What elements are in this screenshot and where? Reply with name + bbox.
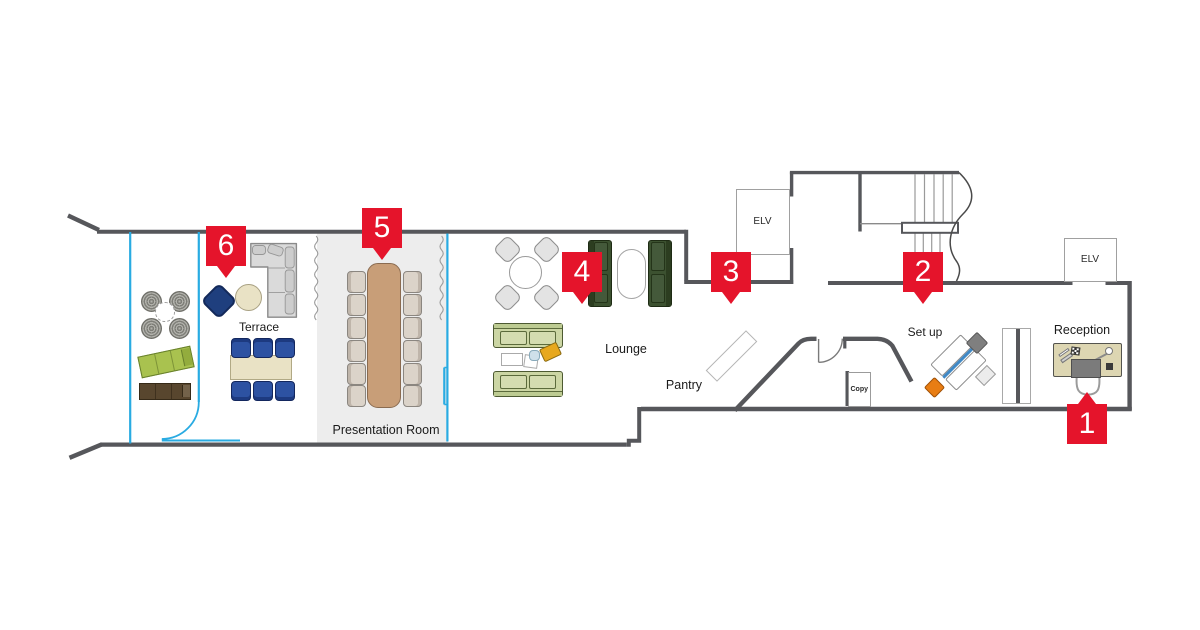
stair-handrail	[902, 223, 958, 233]
presentation-chair	[403, 271, 422, 293]
presentation-chair	[403, 294, 422, 316]
dining-chair	[253, 338, 273, 358]
elv-label: ELV	[753, 216, 771, 227]
ottoman-navy	[201, 283, 238, 320]
marker-3[interactable]: 3	[711, 252, 751, 292]
marker-5[interactable]: 5	[362, 208, 402, 248]
presentation-chair	[347, 363, 366, 385]
presentation-table	[367, 263, 401, 408]
marker-3-number: 3	[723, 257, 740, 287]
presentation-chair	[347, 385, 366, 407]
walls-layer	[0, 0, 1200, 630]
dining-chair	[253, 381, 273, 401]
reception-label: Reception	[1054, 323, 1110, 337]
marker-4-number: 4	[574, 257, 591, 287]
elevator-lobby: ELV	[1064, 238, 1117, 282]
presentation-chair	[403, 317, 422, 339]
pantry-label: Pantry	[666, 378, 702, 392]
elv-label: ELV	[1081, 254, 1099, 265]
presentation-chair	[347, 340, 366, 362]
terrace-dining-table	[230, 355, 292, 380]
marker-6[interactable]: 6	[206, 226, 246, 266]
stair-break-line	[950, 173, 972, 281]
reception-desk	[1053, 343, 1122, 377]
green-sofa-right	[648, 240, 672, 307]
presentation-chair	[347, 294, 366, 316]
presentation-chair	[403, 363, 422, 385]
floor-plan: Copy ELV ELV Terrace Presentation Room L…	[0, 0, 1200, 630]
setup-chair-orange	[923, 376, 944, 397]
dining-chair	[275, 381, 295, 401]
outer-walls	[68, 172, 1132, 458]
presentation-chair	[403, 340, 422, 362]
dining-chair	[231, 381, 251, 401]
partition-screen	[1002, 328, 1031, 404]
coffee-table-oval	[617, 249, 646, 299]
marker-5-number: 5	[374, 213, 391, 243]
stool-lightblue	[529, 350, 540, 361]
corridor-walls	[735, 339, 912, 411]
copy-room: Copy	[848, 372, 872, 407]
sun-lounger-green	[137, 346, 194, 379]
desk-lamp-head	[1105, 347, 1113, 355]
wicker-chair	[169, 318, 190, 339]
presentation-chair	[347, 317, 366, 339]
wicker-chair	[141, 318, 162, 339]
terrace-label: Terrace	[239, 320, 279, 334]
pantry-counter	[705, 330, 757, 382]
round-side-table	[235, 284, 262, 311]
presentation-chair	[347, 271, 366, 293]
light-green-sofa-bottom	[493, 371, 563, 397]
set-up-label: Set up	[908, 325, 943, 339]
reception-counter-panel	[1071, 359, 1101, 378]
outdoor-round-table	[155, 302, 175, 322]
door-pantry-corridor	[819, 339, 843, 363]
cafe-chair	[531, 282, 561, 312]
terrace-door-arc	[162, 402, 199, 439]
sun-lounger-brown	[139, 383, 191, 400]
marker-1[interactable]: 1	[1067, 404, 1107, 444]
elevator-stairs: ELV	[736, 189, 790, 255]
marker-2-number: 2	[915, 257, 932, 287]
presentation-chair	[403, 385, 422, 407]
side-table-white	[501, 353, 523, 366]
marker-6-number: 6	[218, 231, 235, 261]
desk-chip	[1106, 363, 1113, 370]
desk-checker-item	[1070, 346, 1080, 355]
presentation-room-label: Presentation Room	[332, 423, 439, 437]
marker-1-number: 1	[1079, 409, 1096, 439]
dining-chair	[231, 338, 251, 358]
cafe-round-table	[509, 256, 542, 289]
lounge-label: Lounge	[605, 342, 647, 356]
copy-label: Copy	[851, 386, 869, 393]
marker-4[interactable]: 4	[562, 252, 602, 292]
dining-chair	[275, 338, 295, 358]
marker-2[interactable]: 2	[903, 252, 943, 292]
